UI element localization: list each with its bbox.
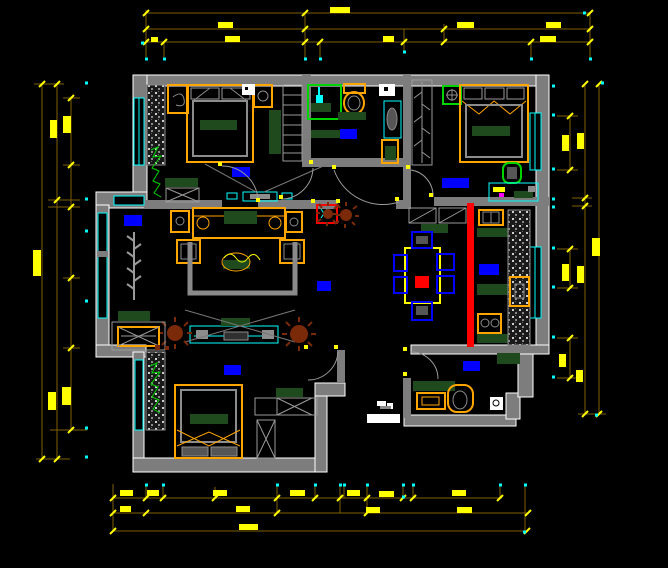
dim-right-value-1 <box>562 135 569 151</box>
bed1-tv-sightlines <box>205 164 328 192</box>
bed1-pillow <box>200 120 237 130</box>
dim-bottom-value-10 <box>366 507 380 513</box>
dim-top-value-8 <box>540 36 556 42</box>
coffee-table-green <box>223 260 250 269</box>
bed2-desk-item-gray <box>528 186 535 192</box>
bed1-nightstand-right-fan <box>258 91 268 101</box>
bath2-shelf <box>497 353 520 364</box>
dim-bottom-value-2 <box>147 490 159 496</box>
wall-bedroom3-east-step <box>315 383 345 396</box>
bed1-nightstand-left-scroll <box>173 94 184 106</box>
bath2-drain <box>490 397 503 410</box>
sofa-arm-right <box>269 217 281 229</box>
window-bedroom3-left <box>135 360 143 430</box>
bed1-ac-unit <box>242 84 255 95</box>
wall-foyer-west <box>337 350 345 383</box>
foyer-icon-a <box>377 401 386 406</box>
window-living-left <box>98 213 107 318</box>
window-living-left-sill <box>97 251 108 257</box>
door-arc-bedroom2 <box>411 170 433 197</box>
cad-canvas[interactable] <box>0 0 668 568</box>
dim-bottom-value-7 <box>452 490 466 496</box>
dim-left-value-2 <box>63 116 71 133</box>
dim-top-value-1 <box>330 7 350 13</box>
dim-left-markers <box>85 83 88 457</box>
label-bathroom-1 <box>340 129 357 139</box>
dim-top-value-5 <box>151 37 158 42</box>
dining-chair-s-seat <box>416 306 428 315</box>
bed1-bench <box>269 110 281 154</box>
label-living-room <box>124 215 142 226</box>
dim-right-value-6 <box>559 354 566 367</box>
bath1-basin <box>387 108 397 130</box>
dim-right-value-2 <box>577 133 584 149</box>
bath2-toilet-seat <box>453 391 467 409</box>
bed3-foot-left <box>182 447 208 456</box>
bed2-desk-item-yellow <box>493 187 505 192</box>
bath1-sink-dot <box>384 87 388 91</box>
side-table-right-lamp <box>290 218 298 226</box>
bath1-cabinet-green <box>385 146 396 160</box>
dim-top-markers <box>141 13 592 59</box>
entry-plant-b <box>340 209 352 221</box>
side-table-left-lamp <box>176 217 184 225</box>
bed2-desk-item-magenta <box>499 193 504 197</box>
dim-top-ticks <box>143 10 593 45</box>
kitchen-sink-grid <box>483 212 499 223</box>
bath2-cabinet <box>417 393 445 409</box>
kitchen-counter-b <box>477 284 508 295</box>
bath1-shower <box>308 85 341 119</box>
dim-right-value-5 <box>577 266 584 283</box>
bath1-shower-tray <box>316 95 323 104</box>
label-kitchen <box>479 264 499 275</box>
dim-top-ext <box>146 10 590 58</box>
dim-left-value-3 <box>33 250 41 276</box>
bed1-closet-shelves <box>283 95 302 153</box>
dim-top-value-7 <box>383 36 394 42</box>
bed3-closet-top-x <box>277 398 312 415</box>
kitchen-counter-a <box>477 228 508 237</box>
dim-bottom-value-12 <box>239 524 258 530</box>
living-plant-left <box>167 325 183 341</box>
label-bathroom-2 <box>463 361 480 371</box>
bed1-dresser-stool-x <box>166 188 199 202</box>
sofa-cushion <box>224 211 257 224</box>
door-arc-bedroom3 <box>308 352 338 380</box>
bath1-toilet-seat <box>348 96 360 110</box>
bath1-shower-shelf <box>311 103 331 112</box>
dim-left-value-1 <box>50 120 57 138</box>
label-entry-white <box>367 414 400 423</box>
wall-kitchen-south <box>411 345 549 354</box>
bed2-fan <box>446 89 458 101</box>
living-coatrack <box>127 232 141 300</box>
dim-left-value-5 <box>62 387 71 405</box>
bed1-closet <box>283 85 302 161</box>
bed1-tv-side-left <box>227 193 237 199</box>
living-shelf-green <box>118 311 150 321</box>
wall-bath2-west <box>403 378 411 418</box>
bed3-foot-right <box>211 447 237 456</box>
dim-right-value-4 <box>562 264 569 281</box>
floor-plan-svg <box>0 0 668 568</box>
hall-shoe-cabinet-rail <box>414 82 430 163</box>
dim-bottom-value-11 <box>457 507 472 513</box>
bed1-headboard-left <box>191 88 219 99</box>
wall-bed2-west <box>403 75 411 205</box>
dim-left-value-4 <box>48 392 56 410</box>
bed2-chair-seat <box>507 167 517 179</box>
kitchen-burner-a <box>481 319 489 327</box>
dining-table <box>405 248 440 303</box>
dim-bottom-value-4 <box>290 490 305 496</box>
bed3-closet-side-x <box>257 420 275 458</box>
bath1-mat-a <box>338 112 366 120</box>
dim-top-value-6 <box>225 36 240 42</box>
bed1-nightstand-right <box>254 85 272 107</box>
dim-right-value-7 <box>576 370 583 382</box>
dim-bottom-value-8 <box>120 506 131 512</box>
dim-top-value-4 <box>546 22 561 28</box>
kitchen-counter-c <box>477 334 508 343</box>
label-dining-room <box>317 281 331 291</box>
bed3-debris-b <box>165 346 169 350</box>
dim-top-value-3 <box>457 22 474 28</box>
tv-screen <box>224 332 248 340</box>
door-hinges <box>218 162 433 374</box>
wall-bath2-right-step2 <box>518 352 533 397</box>
dim-bottom-value-9 <box>236 506 250 512</box>
bed2-desk-item-green <box>514 191 533 198</box>
side-table-right <box>286 212 302 232</box>
label-bedroom-2 <box>442 178 469 188</box>
bed3-shelf-green <box>276 388 303 397</box>
bed2-canopy <box>462 101 526 114</box>
bed2-frame <box>460 85 528 162</box>
dim-top-value-2 <box>218 22 233 28</box>
bed2-pillow <box>472 126 510 136</box>
dim-bottom-value-1 <box>120 490 133 496</box>
bed3-debris-a <box>155 345 160 350</box>
window-living-step <box>114 196 144 205</box>
dim-right-value-3 <box>592 238 600 256</box>
door-arc-entry <box>334 170 399 205</box>
dim-bottom-value-3 <box>213 490 227 496</box>
door-arc-bathroom2 <box>411 352 438 379</box>
bed1-nightstand-left <box>168 85 188 113</box>
living-plant-right <box>290 325 308 343</box>
label-bedroom-3 <box>224 365 241 375</box>
bay-seat-x <box>118 327 159 346</box>
bath1-mat-b <box>311 130 344 138</box>
dim-bottom-ticks <box>110 495 531 534</box>
bed3-pillow <box>190 414 228 424</box>
kitchen-partition-red <box>467 203 474 347</box>
side-table-left <box>171 211 189 232</box>
kitchen-burner-b <box>491 319 499 327</box>
sofa-arm-left <box>197 217 209 229</box>
foyer-icon-base <box>380 406 391 409</box>
dim-bottom-value-6 <box>379 491 394 497</box>
armchair-right-seat <box>284 244 300 259</box>
bath1-toilet-bowl <box>344 92 364 114</box>
bed1-ac-dot <box>245 87 248 90</box>
wall-bottom-bedroom3 <box>133 458 327 472</box>
dining-table-runner <box>415 276 429 288</box>
wall-bath2-bottom <box>404 415 516 426</box>
bed2-headboard <box>464 88 524 99</box>
bed1-dresser <box>165 178 198 187</box>
bed1-wardrobe-hatched <box>147 85 165 165</box>
dim-bottom-value-5 <box>347 490 360 496</box>
bed3-canopy <box>177 430 240 446</box>
dining-cabinet-a-diag <box>409 208 436 223</box>
dining-chair-n-seat <box>416 236 428 244</box>
entry-plant-a <box>323 209 333 219</box>
tv-speaker-left <box>196 330 208 339</box>
bath2-cabinet-inner <box>422 397 439 405</box>
dining-cabinet-b-diag <box>439 208 466 223</box>
